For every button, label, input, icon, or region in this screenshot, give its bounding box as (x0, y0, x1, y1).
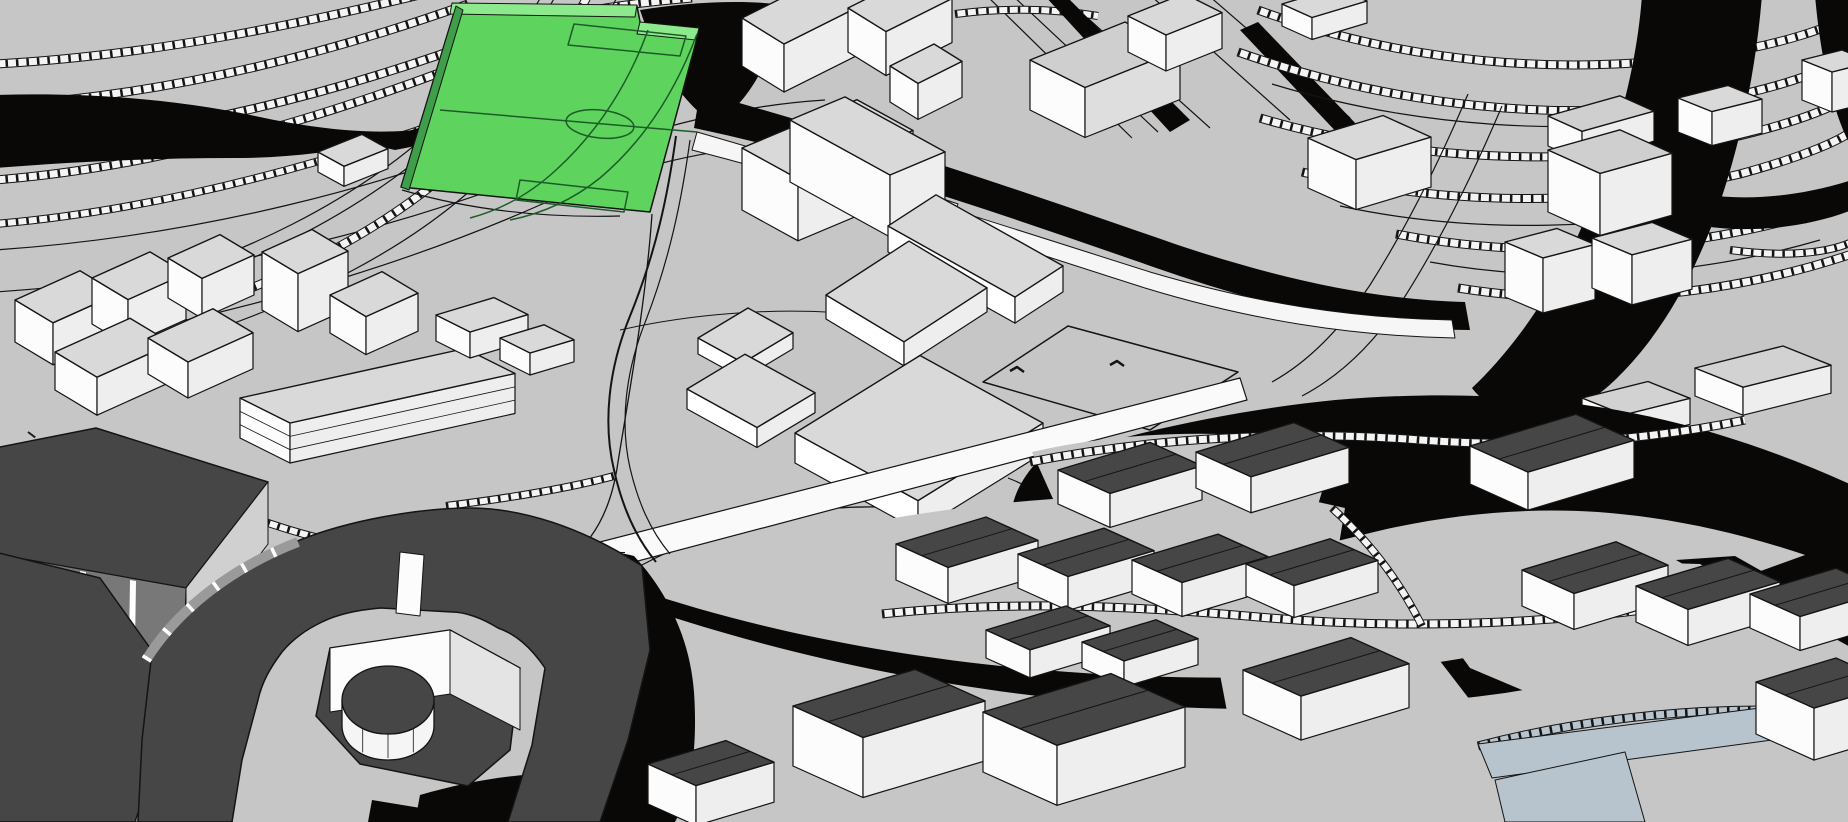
soccer-field-upper-band (450, 3, 637, 17)
scene[interactable] (0, 0, 1848, 822)
round-pavilion-top[interactable] (342, 666, 434, 734)
roof-opening (396, 552, 424, 616)
model-viewport[interactable] (0, 0, 1848, 822)
